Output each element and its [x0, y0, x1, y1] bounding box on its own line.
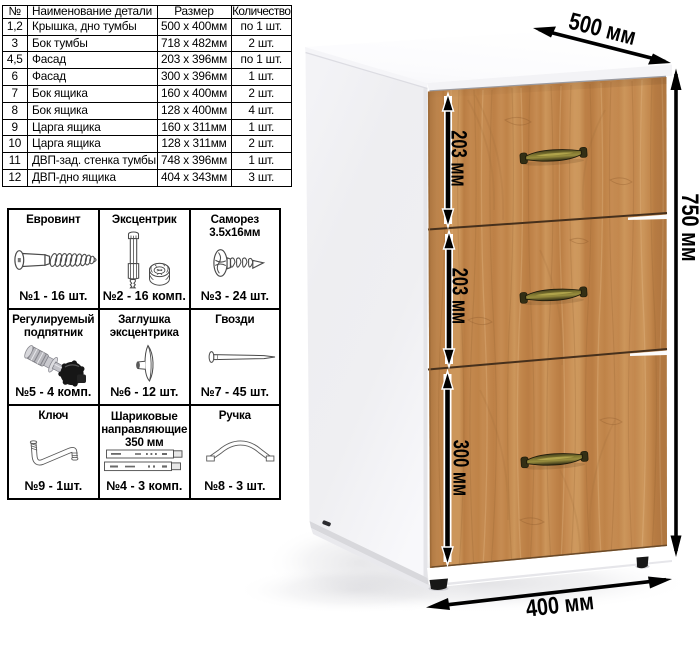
svg-text:203 мм: 203 мм	[446, 130, 471, 187]
svg-text:750 мм: 750 мм	[677, 193, 700, 261]
svg-text:300 мм: 300 мм	[448, 440, 473, 497]
svg-text:203 мм: 203 мм	[447, 268, 472, 325]
